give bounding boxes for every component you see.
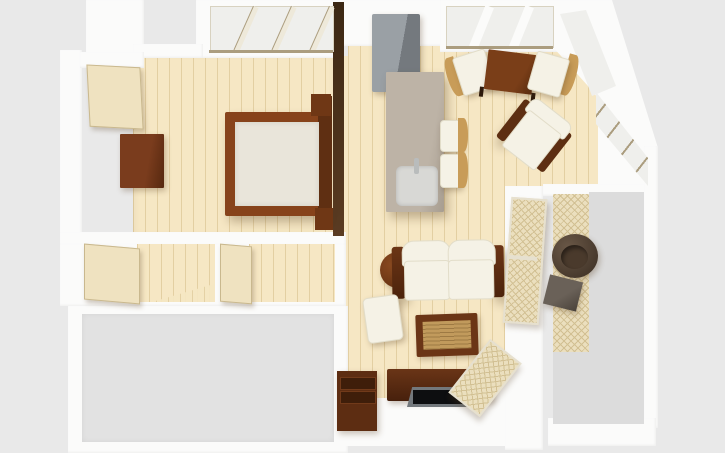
storage-room-door[interactable] xyxy=(84,244,140,305)
bedroom-window xyxy=(210,6,334,52)
kitchen-island[interactable] xyxy=(386,72,444,212)
sofa-seat-cushion xyxy=(448,259,495,300)
tub-chair-cushion xyxy=(561,245,588,269)
dining-window xyxy=(446,6,554,48)
window-mullion-icon xyxy=(309,6,334,52)
window-mullion-icon xyxy=(233,6,258,52)
floor-plan-scene xyxy=(0,0,725,453)
stool-back xyxy=(458,118,468,152)
storage-room-b-wall-face xyxy=(249,244,335,302)
door-crossbar-icon xyxy=(509,255,537,261)
tub-chair[interactable] xyxy=(552,234,598,278)
cabinet-drawer xyxy=(340,391,376,404)
sofa[interactable] xyxy=(391,239,504,301)
lower-room-floor xyxy=(82,314,334,442)
dresser[interactable] xyxy=(120,134,164,188)
partition-wall xyxy=(333,2,344,236)
bed-frame-tab-top xyxy=(311,94,331,116)
cabinet-drawer xyxy=(340,377,376,390)
wall-balcony-right-band xyxy=(644,146,658,428)
window-mullion-icon xyxy=(509,5,534,49)
bar-stool[interactable] xyxy=(440,118,468,152)
window-sill xyxy=(209,50,333,53)
faucet-icon xyxy=(414,158,419,174)
entry-door[interactable] xyxy=(86,64,143,129)
storage-cabinet[interactable] xyxy=(337,371,377,431)
wall-left-band xyxy=(60,50,82,246)
sofa-seat-cushion xyxy=(404,260,451,301)
bed[interactable] xyxy=(223,94,333,232)
coffee-table[interactable] xyxy=(415,313,478,357)
bar-stool[interactable] xyxy=(440,152,468,188)
stool-back xyxy=(458,152,468,188)
ottoman[interactable] xyxy=(362,294,404,345)
bed-frame-tab-bottom xyxy=(315,208,333,230)
window-mullion-icon xyxy=(469,5,494,49)
window-mullion-icon xyxy=(271,6,296,52)
bed-mattress xyxy=(235,122,319,206)
storage-room-door[interactable] xyxy=(220,244,252,305)
coffee-table-top xyxy=(423,320,472,350)
